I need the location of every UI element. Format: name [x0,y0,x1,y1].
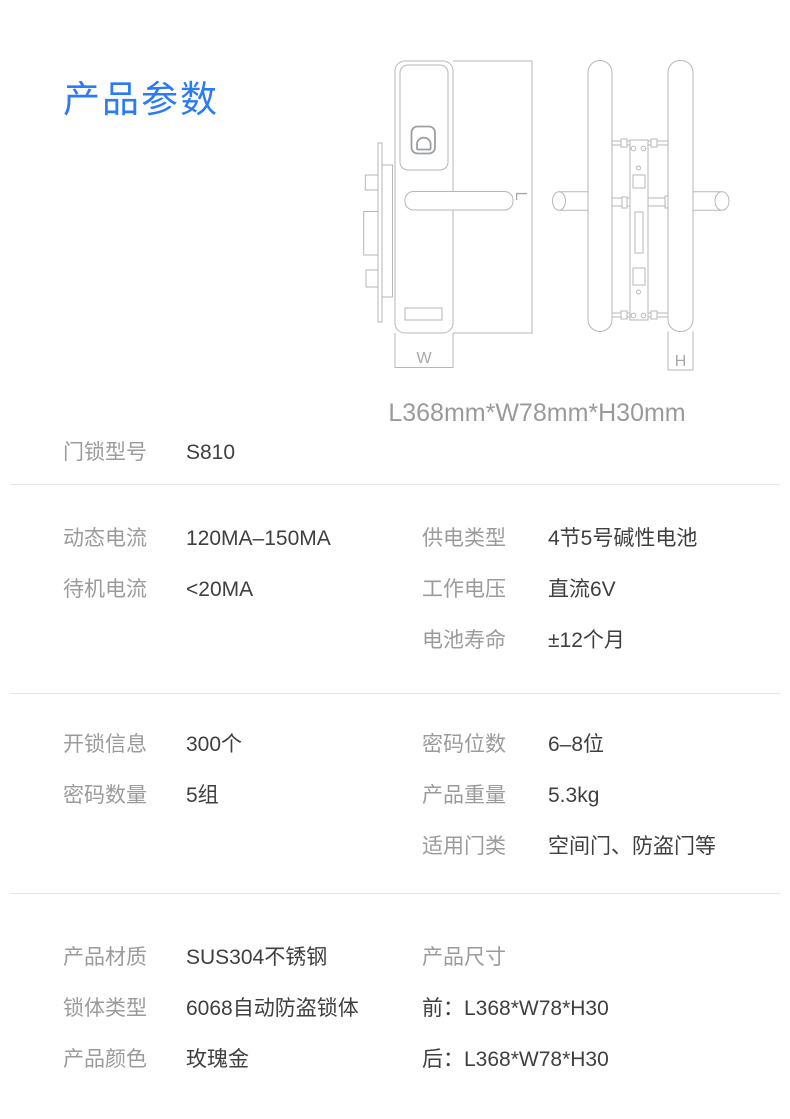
spec-value-product-color: 玫瑰金 [186,1049,249,1071]
spec-label-standby-current: 待机电流 [63,579,147,601]
side-plate [382,165,393,297]
spec-label-password-count: 密码数量 [63,785,147,807]
handle-end-cap [553,192,566,211]
height-dimension-label: H [675,353,687,370]
spec-value-lock-body-type: 6068自动防盗锁体 [186,998,359,1020]
spec-value-model: S810 [186,442,235,464]
spec-label-password-digits: 密码位数 [422,734,506,756]
spec-value-dynamic-current: 120MA–150MA [186,528,331,550]
spec-value-size-back: 后：L368*W78*H30 [422,1049,609,1071]
spec-label-lock-body-type: 锁体类型 [63,998,147,1020]
spec-value-password-digits: 6–8位 [548,734,604,756]
spec-value-working-voltage: 直流6V [548,579,616,601]
divider [10,484,780,485]
spec-label-battery-life: 电池寿命 [422,630,506,652]
dimension-caption: L368mm*W78mm*H30mm [337,399,737,428]
spec-label-model: 门锁型号 [63,442,147,464]
divider [10,893,780,894]
width-dimension-label: W [416,350,432,367]
spec-value-material: SUS304不锈钢 [186,947,327,969]
spindle-connector [622,197,627,208]
spec-value-size-front: 前：L368*W78*H30 [422,998,609,1020]
spec-label-product-color: 产品颜色 [63,1049,147,1071]
rod-connector [651,311,657,319]
page-title: 产品参数 [63,80,219,120]
spec-value-unlock-info: 300个 [186,734,242,756]
back-panel-side [668,61,693,332]
spec-value-password-count: 5组 [186,785,219,807]
faceplate-edge [378,143,382,322]
rod-connector [621,139,627,147]
spec-value-battery-life: ±12个月 [548,630,625,652]
spec-value-power-type: 4节5号碱性电池 [548,528,697,550]
lock-technical-drawing: L W [350,40,750,390]
spec-label-product-size: 产品尺寸 [422,947,506,969]
front-panel-side [588,61,612,332]
rod-connector [651,139,657,147]
spec-label-power-type: 供电类型 [422,528,506,550]
spec-label-material: 产品材质 [63,947,147,969]
length-dimension-label: L [512,192,529,201]
spec-value-product-weight: 5.3kg [548,785,599,807]
divider [10,693,780,694]
latch-bolt [365,175,378,190]
product-parameters-page: 产品参数 L W [0,0,790,1119]
front-view-drawing: L W [364,61,532,368]
deadbolt [366,270,378,287]
side-view-drawing: H [553,61,730,371]
mortise-faceplate [630,140,648,320]
spec-label-working-voltage: 工作电压 [422,579,506,601]
spec-label-dynamic-current: 动态电流 [63,528,147,550]
lock-case [364,212,378,256]
rod-connector [621,311,627,319]
spec-label-door-types: 适用门类 [422,836,506,858]
spec-label-product-weight: 产品重量 [422,785,506,807]
spec-value-door-types: 空间门、防盗门等 [548,836,716,858]
spec-label-unlock-info: 开锁信息 [63,734,147,756]
handle-end-cap [715,192,729,211]
spec-value-standby-current: <20MA [186,579,253,601]
door-handle-front [405,192,513,211]
